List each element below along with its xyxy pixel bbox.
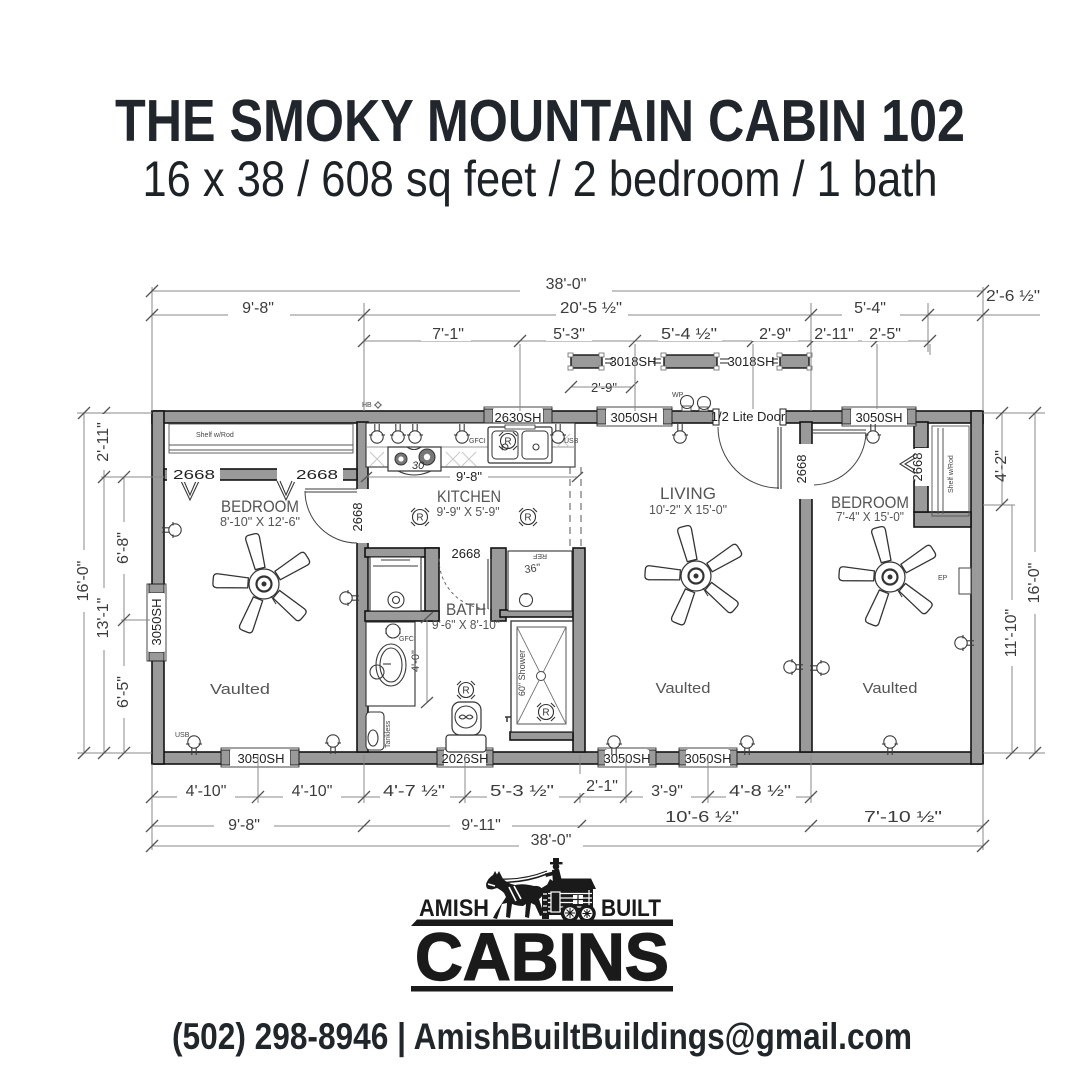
svg-text:(502) 298-8946 | AmishBuiltBui: (502) 298-8946 | AmishBuiltBuildings@gma… <box>172 1016 912 1058</box>
svg-text:6'-5": 6'-5" <box>115 676 132 708</box>
svg-text:BUILT: BUILT <box>601 895 661 922</box>
svg-text:3050SH: 3050SH <box>611 410 658 425</box>
svg-text:5'-4": 5'-4" <box>854 300 886 317</box>
svg-text:THE SMOKY MOUNTAIN CABIN 102: THE SMOKY MOUNTAIN CABIN 102 <box>115 88 965 154</box>
svg-text:9'-8": 9'-8" <box>456 469 482 484</box>
svg-text:7'-1": 7'-1" <box>432 326 464 343</box>
svg-text:16 x 38 / 608 sq feet / 2 bedr: 16 x 38 / 608 sq feet / 2 bedroom / 1 ba… <box>143 151 938 207</box>
svg-text:2'-6 ½": 2'-6 ½" <box>986 288 1040 305</box>
svg-text:2'-11": 2'-11" <box>814 326 854 343</box>
svg-text:8'-10" X 12'-6": 8'-10" X 12'-6" <box>220 514 300 529</box>
svg-text:3'-9": 3'-9" <box>651 783 683 800</box>
svg-text:9'-9" X 5'-9": 9'-9" X 5'-9" <box>437 504 500 519</box>
svg-text:30: 30 <box>412 460 425 472</box>
svg-text:2668: 2668 <box>296 467 338 482</box>
svg-text:GFCI: GFCI <box>399 636 416 643</box>
svg-text:36": 36" <box>524 562 542 576</box>
svg-text:3050SH: 3050SH <box>238 751 285 766</box>
svg-text:9'-6" X 8'-10": 9'-6" X 8'-10" <box>432 617 500 632</box>
svg-text:LIVING: LIVING <box>660 484 716 503</box>
svg-text:Shelf w/Rod: Shelf w/Rod <box>196 432 234 439</box>
svg-text:3018SH: 3018SH <box>728 354 775 369</box>
svg-text:10'-2" X 15'-0": 10'-2" X 15'-0" <box>649 502 727 517</box>
svg-text:2'-11": 2'-11" <box>95 422 112 462</box>
svg-text:USB: USB <box>175 732 190 739</box>
svg-text:4'-8 ½": 4'-8 ½" <box>729 783 791 800</box>
svg-text:5'-4 ½": 5'-4 ½" <box>661 326 717 343</box>
svg-text:2'-9": 2'-9" <box>759 326 791 343</box>
svg-text:3050SH: 3050SH <box>604 751 651 766</box>
svg-text:4'-2": 4'-2" <box>993 450 1010 482</box>
svg-text:16'-0": 16'-0" <box>75 561 92 602</box>
svg-text:6'-8": 6'-8" <box>115 532 132 564</box>
svg-text:AMISH: AMISH <box>419 895 489 922</box>
svg-text:3050SH: 3050SH <box>856 410 903 425</box>
svg-text:10'-6 ½": 10'-6 ½" <box>665 809 739 826</box>
svg-text:USB: USB <box>564 438 579 445</box>
svg-text:5'-3": 5'-3" <box>553 326 585 343</box>
svg-text:Tankless: Tankless <box>385 720 392 748</box>
svg-text:EP: EP <box>938 575 948 582</box>
svg-text:38'-0": 38'-0" <box>546 276 587 293</box>
svg-text:2'-1": 2'-1" <box>586 778 618 795</box>
svg-text:7'-10 ½": 7'-10 ½" <box>864 809 942 826</box>
svg-text:4'-10": 4'-10" <box>292 783 333 800</box>
svg-text:2668: 2668 <box>173 467 215 482</box>
svg-text:7'-4" X 15'-0": 7'-4" X 15'-0" <box>836 509 904 524</box>
svg-text:CABINS: CABINS <box>415 920 669 995</box>
svg-text:3018SH: 3018SH <box>610 354 657 369</box>
svg-text:38'-0": 38'-0" <box>531 832 572 849</box>
svg-text:11'-10": 11'-10" <box>1003 609 1020 657</box>
svg-text:13'-1": 13'-1" <box>95 598 112 639</box>
svg-text:Vaulted: Vaulted <box>656 680 711 697</box>
svg-text:Vaulted: Vaulted <box>863 680 918 697</box>
svg-text:2668: 2668 <box>794 455 809 484</box>
svg-text:16'-0": 16'-0" <box>1026 563 1043 604</box>
svg-text:REF: REF <box>533 552 547 559</box>
svg-text:GFCI: GFCI <box>469 438 486 445</box>
svg-text:2668: 2668 <box>350 503 365 532</box>
svg-text:2668: 2668 <box>452 546 481 561</box>
svg-text:9'-8": 9'-8" <box>228 817 260 834</box>
svg-text:2'-5": 2'-5" <box>869 326 901 343</box>
svg-text:60" Shower: 60" Shower <box>517 650 527 696</box>
svg-text:9'-8": 9'-8" <box>242 300 274 317</box>
svg-text:4'-0": 4'-0" <box>410 650 422 672</box>
svg-text:9'-11": 9'-11" <box>461 817 501 834</box>
svg-text:1/2 Lite Door: 1/2 Lite Door <box>711 409 786 424</box>
svg-text:2668: 2668 <box>910 453 925 482</box>
svg-text:4'-10": 4'-10" <box>186 783 227 800</box>
svg-text:20'-5 ½": 20'-5 ½" <box>560 300 622 317</box>
svg-text:4'-7 ½": 4'-7 ½" <box>383 783 445 800</box>
svg-text:2'-9": 2'-9" <box>591 380 617 395</box>
svg-text:5'-3 ½": 5'-3 ½" <box>490 783 554 800</box>
svg-text:3050SH: 3050SH <box>149 599 164 646</box>
svg-text:Shelf w/Rod: Shelf w/Rod <box>948 455 955 493</box>
svg-text:Vaulted: Vaulted <box>210 681 270 698</box>
